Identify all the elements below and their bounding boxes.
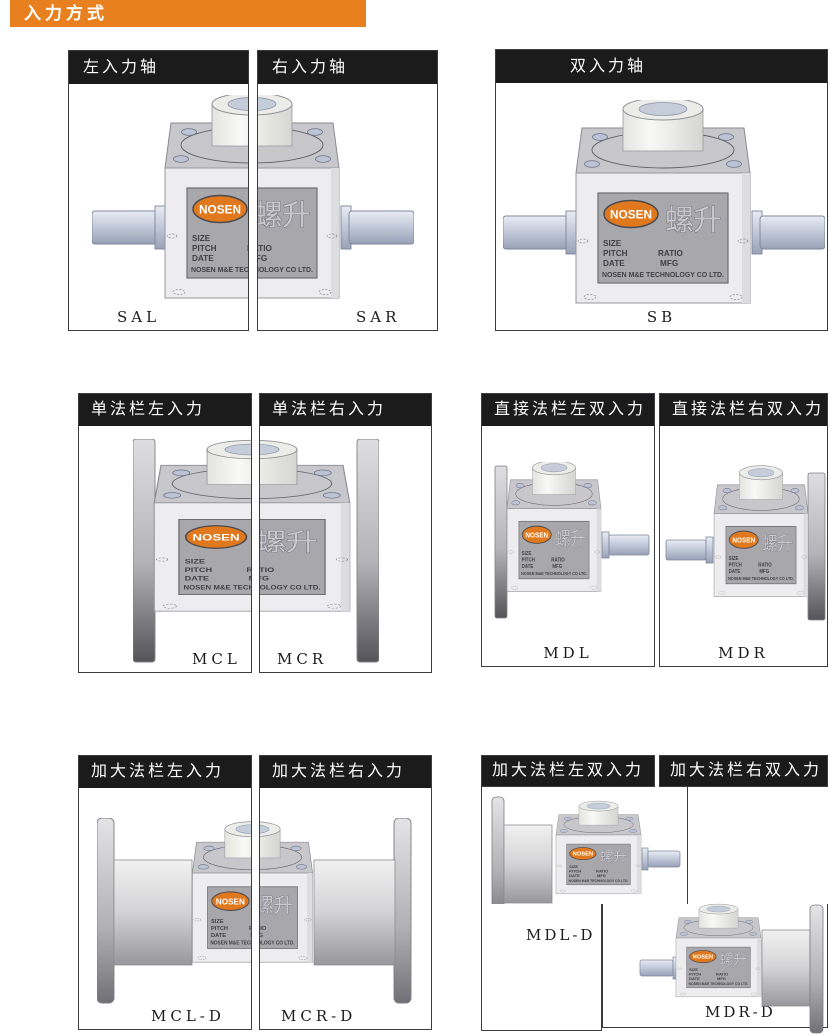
gearbox-image-mcrd	[259, 818, 412, 1004]
page-title-banner: 入力方式	[10, 0, 366, 27]
panel-sb-title: 双入力轴	[570, 58, 646, 75]
panel-mcld-title-bar: 加大法栏左入力	[79, 756, 251, 788]
gearbox-image-sar	[257, 95, 414, 310]
model-label-mdr: MDR	[718, 644, 769, 662]
panel-mdld-lower: MDL-D	[481, 904, 602, 1031]
panel-mdrd-title-bar: 加大法栏右双入力	[659, 755, 828, 787]
catalog-page: NOSEN 螺升 SIZE PITCH DATE RATIO MFG NOSEN…	[0, 0, 830, 1035]
panel-mdrd-title: 加大法栏右双入力	[670, 762, 822, 779]
gearbox-image-mdrd	[640, 900, 830, 1035]
panel-mcl-title: 单法栏左入力	[91, 401, 205, 418]
page-title: 入力方式	[24, 4, 108, 23]
gearbox-image-sal	[92, 95, 249, 310]
panel-sar-title: 右入力轴	[272, 59, 348, 76]
panel-mdld-upper	[481, 787, 688, 904]
panel-mcl: 单法栏左入力 MCL	[78, 393, 252, 673]
panel-mcrd-title: 加大法栏右入力	[272, 763, 405, 780]
model-label-mdl: MDL	[543, 644, 592, 662]
panel-mdl: 直接法栏左双入力 MDL	[481, 393, 655, 667]
panel-mdld-title: 加大法栏左双入力	[492, 762, 644, 779]
panel-mdr-title-bar: 直接法栏右双入力	[660, 394, 827, 426]
gearbox-image-mdr	[660, 465, 828, 627]
panel-sb-title-bar: 双入力轴	[496, 50, 827, 83]
panel-sal: 左入力轴 SAL	[68, 50, 249, 331]
model-label-mcr: MCR	[277, 650, 327, 668]
panel-sal-title-bar: 左入力轴	[69, 51, 248, 84]
panel-mcrd: 加大法栏右入力 MCR-D	[259, 755, 432, 1030]
gearbox-image-mcld	[97, 818, 252, 1004]
panel-mdld-title-bar: 加大法栏左双入力	[481, 755, 655, 787]
panel-mdl-title-bar: 直接法栏左双入力	[482, 394, 654, 426]
gearbox-image-mcl	[133, 439, 252, 665]
model-label-sar: SAR	[356, 308, 400, 326]
panel-sal-title: 左入力轴	[83, 59, 159, 76]
panel-mcr: 单法栏右入力 MCR	[259, 393, 432, 673]
panel-sb: 双入力轴 SB	[495, 49, 828, 331]
panel-mcr-title: 单法栏右入力	[272, 401, 386, 418]
gearbox-image-mdl	[494, 462, 655, 624]
panel-mdr: 直接法栏右双入力 MDR	[659, 393, 828, 667]
panel-mcld: 加大法栏左入力 MCL-D	[78, 755, 252, 1030]
panel-mdl-title: 直接法栏左双入力	[494, 401, 646, 418]
panel-mcl-title-bar: 单法栏左入力	[79, 394, 251, 426]
panel-sar-title-bar: 右入力轴	[258, 51, 437, 84]
model-label-mdld: MDL-D	[526, 926, 595, 944]
gearbox-image-mcr	[259, 439, 379, 665]
model-label-sb: SB	[647, 308, 676, 326]
panel-sar: 右入力轴 SAR	[257, 50, 438, 331]
panel-mcr-title-bar: 单法栏右入力	[260, 394, 431, 426]
panel-mcrd-title-bar: 加大法栏右入力	[260, 756, 431, 788]
panel-mdr-title: 直接法栏右双入力	[672, 401, 824, 418]
model-label-mcrd: MCR-D	[281, 1007, 356, 1025]
panel-mcld-title: 加大法栏左入力	[91, 763, 224, 780]
model-label-mcld: MCL-D	[151, 1007, 225, 1025]
model-label-mcl: MCL	[192, 650, 241, 668]
model-label-sal: SAL	[117, 308, 160, 326]
gearbox-image-sb	[503, 100, 825, 315]
